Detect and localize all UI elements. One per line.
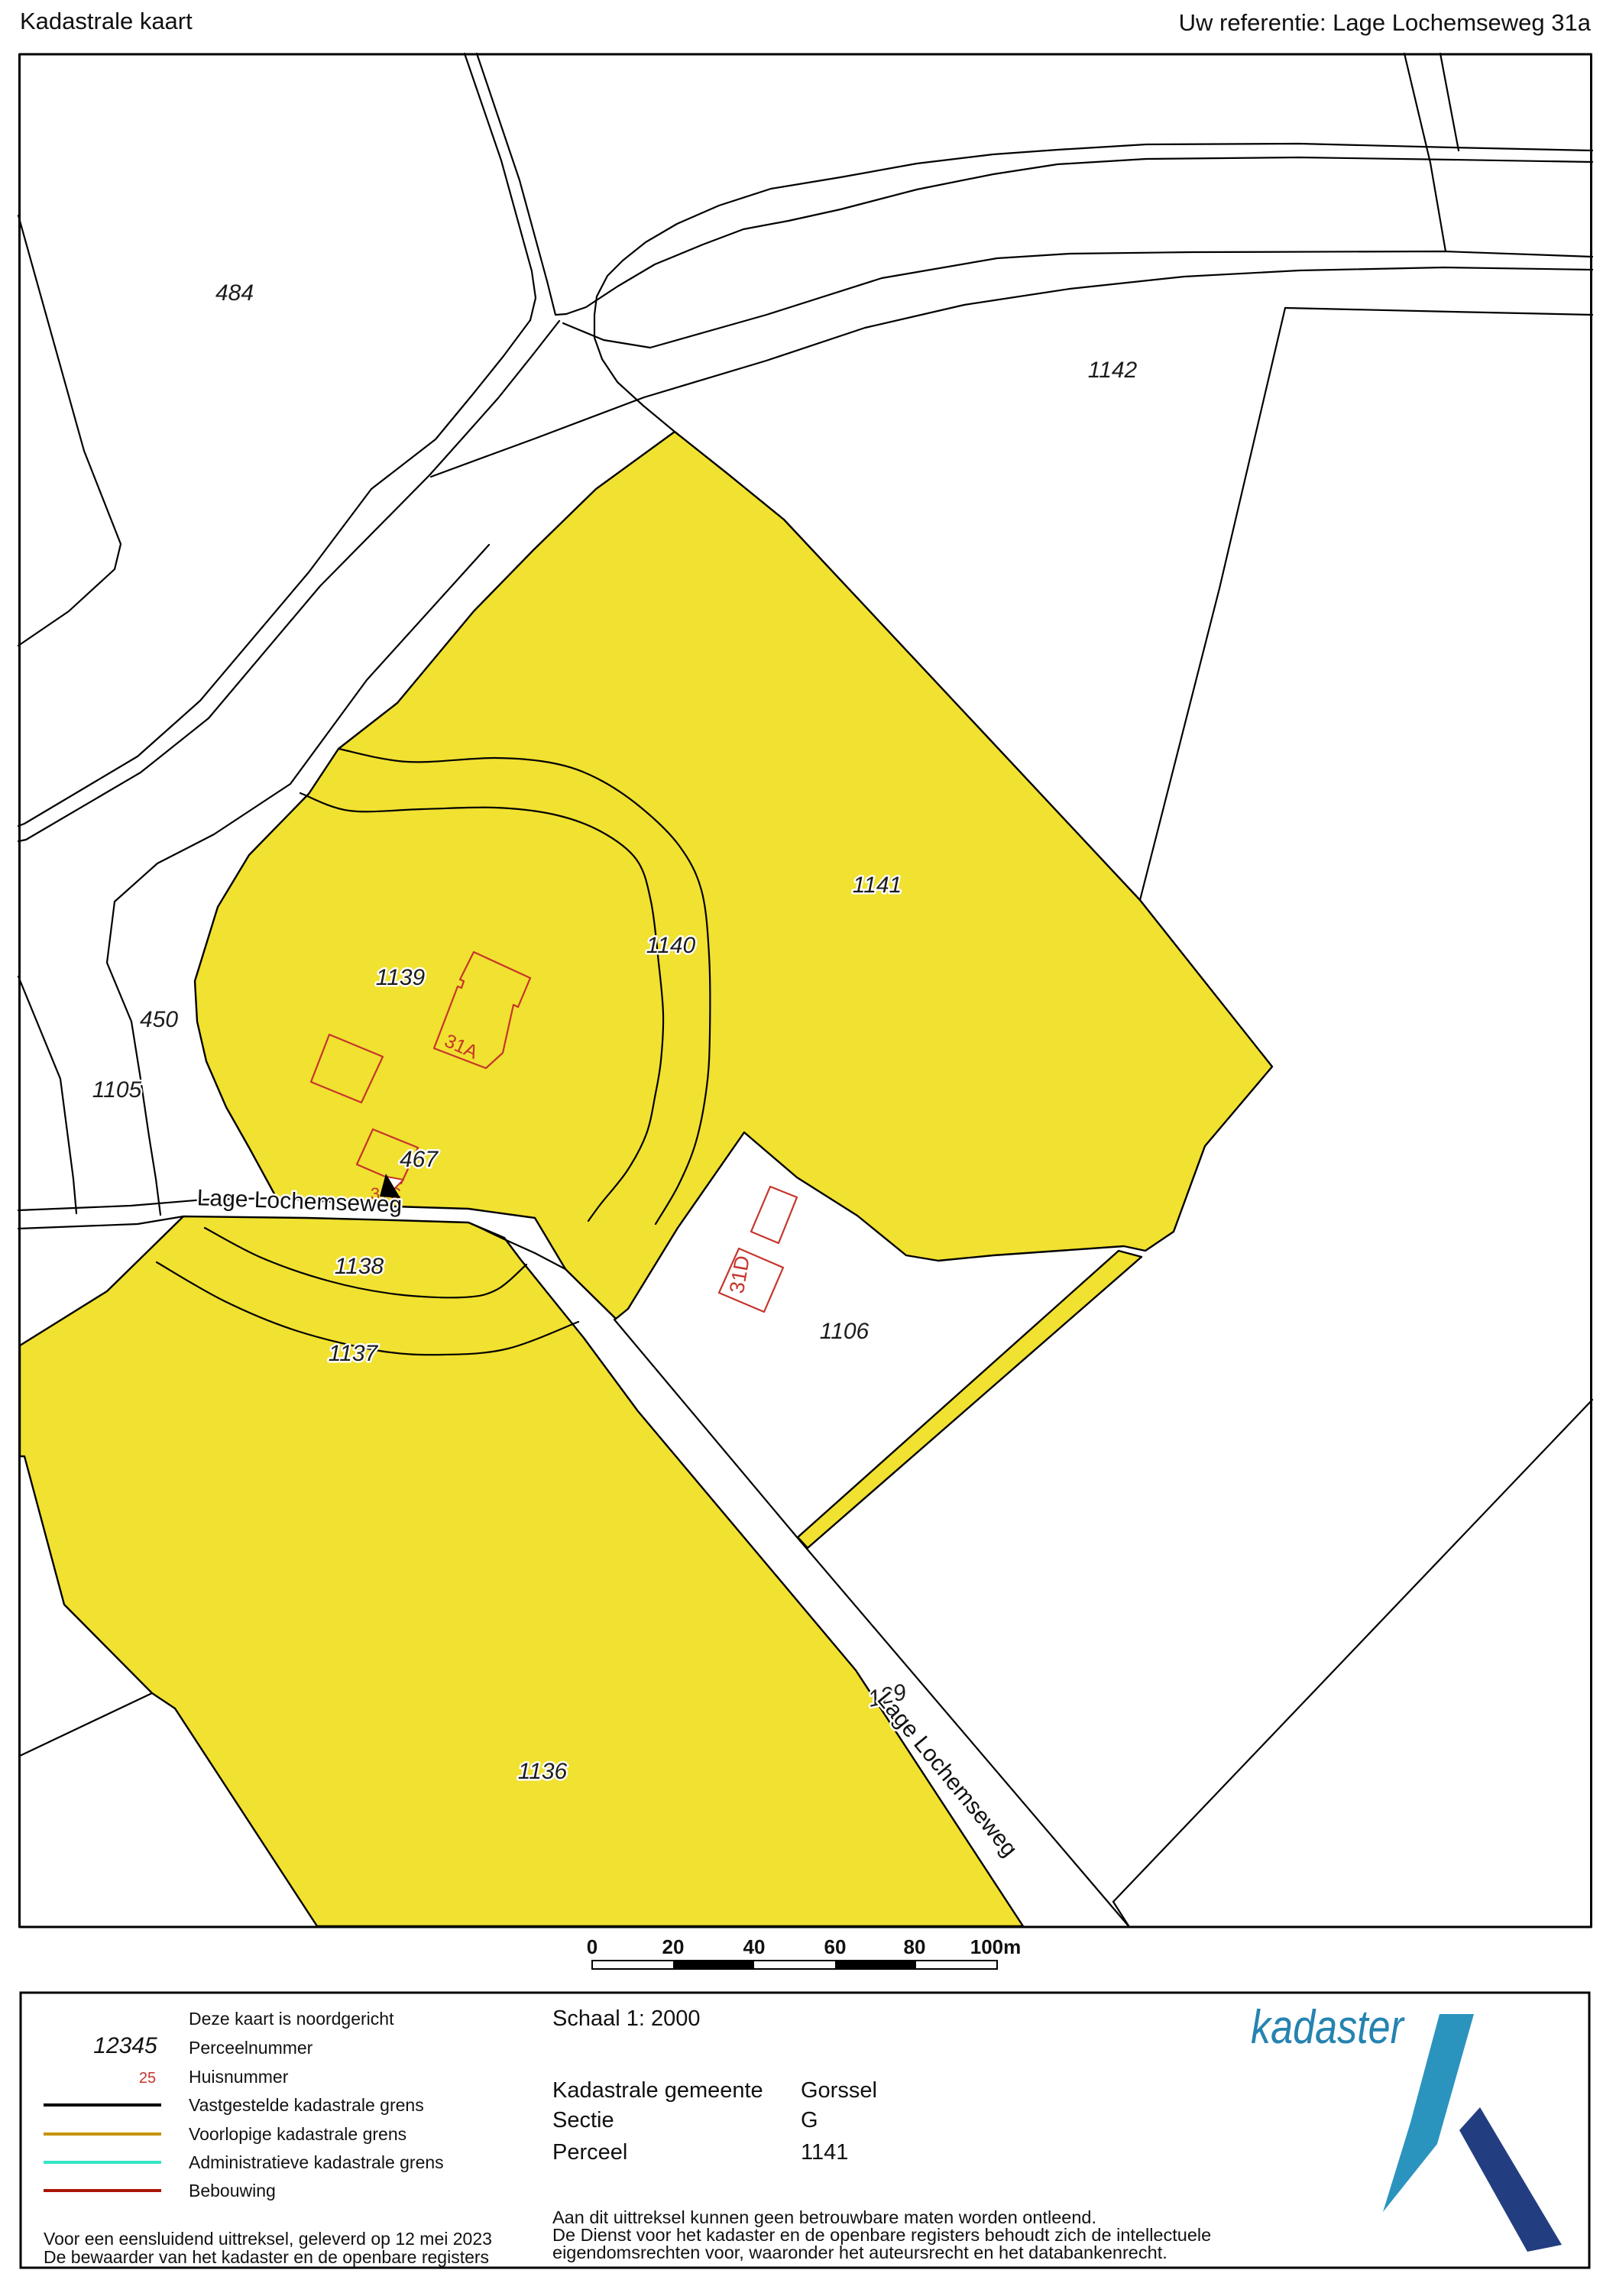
svg-text:1140: 1140 <box>646 933 696 958</box>
svg-text:Vastgestelde kadastrale grens: Vastgestelde kadastrale grens <box>189 2095 424 2115</box>
svg-text:20: 20 <box>662 1935 685 1958</box>
svg-text:Perceelnummer: Perceelnummer <box>189 2038 313 2058</box>
svg-text:Kadastrale kaart: Kadastrale kaart <box>20 8 193 34</box>
svg-text:100m: 100m <box>970 1935 1022 1958</box>
svg-text:12345: 12345 <box>93 2033 157 2058</box>
svg-text:Gorssel: Gorssel <box>801 2078 877 2103</box>
svg-text:Schaal 1: 2000: Schaal 1: 2000 <box>552 2006 700 2031</box>
svg-text:1105: 1105 <box>92 1077 142 1103</box>
svg-text:467: 467 <box>400 1147 439 1172</box>
svg-text:60: 60 <box>824 1935 847 1958</box>
svg-text:1141: 1141 <box>801 2140 848 2165</box>
svg-text:1141: 1141 <box>853 873 902 898</box>
svg-text:1138: 1138 <box>335 1254 384 1279</box>
svg-text:Kadastrale gemeente: Kadastrale gemeente <box>552 2078 763 2103</box>
svg-text:1136: 1136 <box>518 1759 568 1784</box>
svg-text:Deze kaart is noordgericht: Deze kaart is noordgericht <box>189 2009 394 2029</box>
svg-text:Huisnummer: Huisnummer <box>189 2067 289 2087</box>
svg-text:Voor een eensluidend uittrekse: Voor een eensluidend uittreksel, gelever… <box>44 2229 492 2249</box>
svg-text:1137: 1137 <box>329 1341 379 1366</box>
svg-text:484: 484 <box>215 280 254 306</box>
svg-text:0: 0 <box>587 1935 597 1958</box>
svg-text:De bewaarder van het kadaster: De bewaarder van het kadaster en de open… <box>44 2247 489 2267</box>
svg-text:1139: 1139 <box>376 965 426 990</box>
svg-text:1106: 1106 <box>820 1319 870 1344</box>
svg-text:kadaster: kadaster <box>1251 2001 1405 2054</box>
svg-text:450: 450 <box>140 1007 178 1032</box>
svg-text:25: 25 <box>139 2070 156 2087</box>
svg-text:eigendomsrechten voor, waarond: eigendomsrechten voor, waaronder het aut… <box>552 2243 1167 2262</box>
svg-text:Sectie: Sectie <box>552 2108 614 2132</box>
svg-text:31D: 31D <box>725 1254 754 1295</box>
svg-text:Perceel: Perceel <box>552 2140 627 2165</box>
svg-text:1142: 1142 <box>1088 358 1138 383</box>
svg-text:Administratieve kadastrale gre: Administratieve kadastrale grens <box>189 2152 444 2172</box>
svg-text:80: 80 <box>904 1935 926 1958</box>
svg-text:Uw referentie: Lage Lochemsewe: Uw referentie: Lage Lochemseweg 31a <box>1179 9 1592 36</box>
svg-text:Bebouwing: Bebouwing <box>189 2181 276 2200</box>
svg-text:40: 40 <box>743 1935 766 1958</box>
svg-text:G: G <box>801 2108 818 2132</box>
svg-text:Voorlopige kadastrale grens: Voorlopige kadastrale grens <box>189 2124 406 2144</box>
